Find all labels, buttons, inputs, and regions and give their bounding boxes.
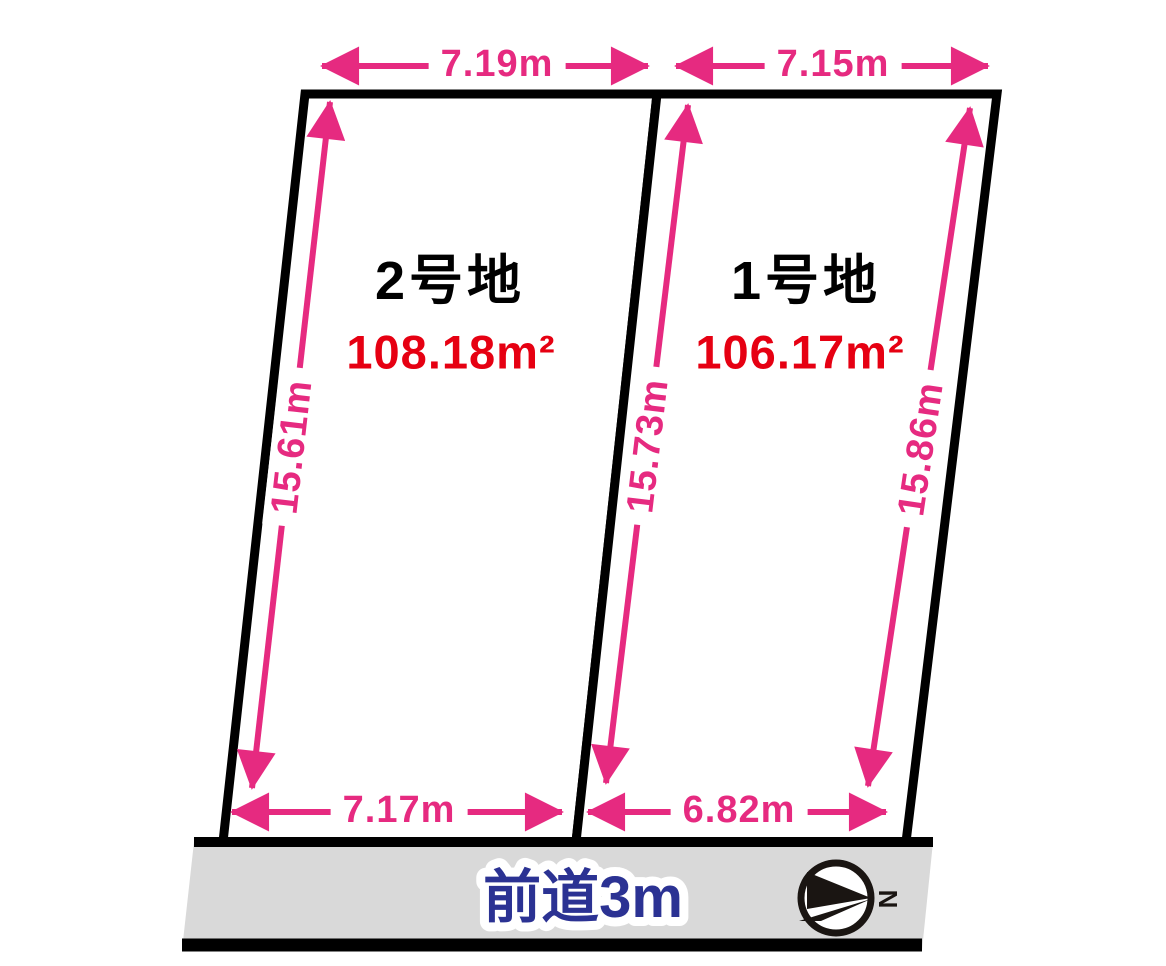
site-plan-drawing: 前道3m 前道3m <box>0 0 1166 966</box>
lot-2-area: 108.18m² <box>346 329 555 376</box>
dimension-label-lot2-top: 7.19m <box>429 43 566 85</box>
lot-1-area: 106.17m² <box>695 329 904 376</box>
dimension-label-lot2-bottom: 7.17m <box>331 789 468 831</box>
lot-1-name: 1号地 <box>731 254 881 308</box>
dimension-label-lot1-bottom: 6.82m <box>671 789 808 831</box>
dimension-label-lot1-top: 7.15m <box>765 43 902 85</box>
compass-north-label: N <box>875 890 901 909</box>
site-plan-diagram: 前道3m 前道3m 7.19m 7.15m 15.61m 15.73m 15.8… <box>0 0 1166 966</box>
lot-2-name: 2号地 <box>375 254 525 308</box>
road-label: 前道3m <box>483 865 683 930</box>
